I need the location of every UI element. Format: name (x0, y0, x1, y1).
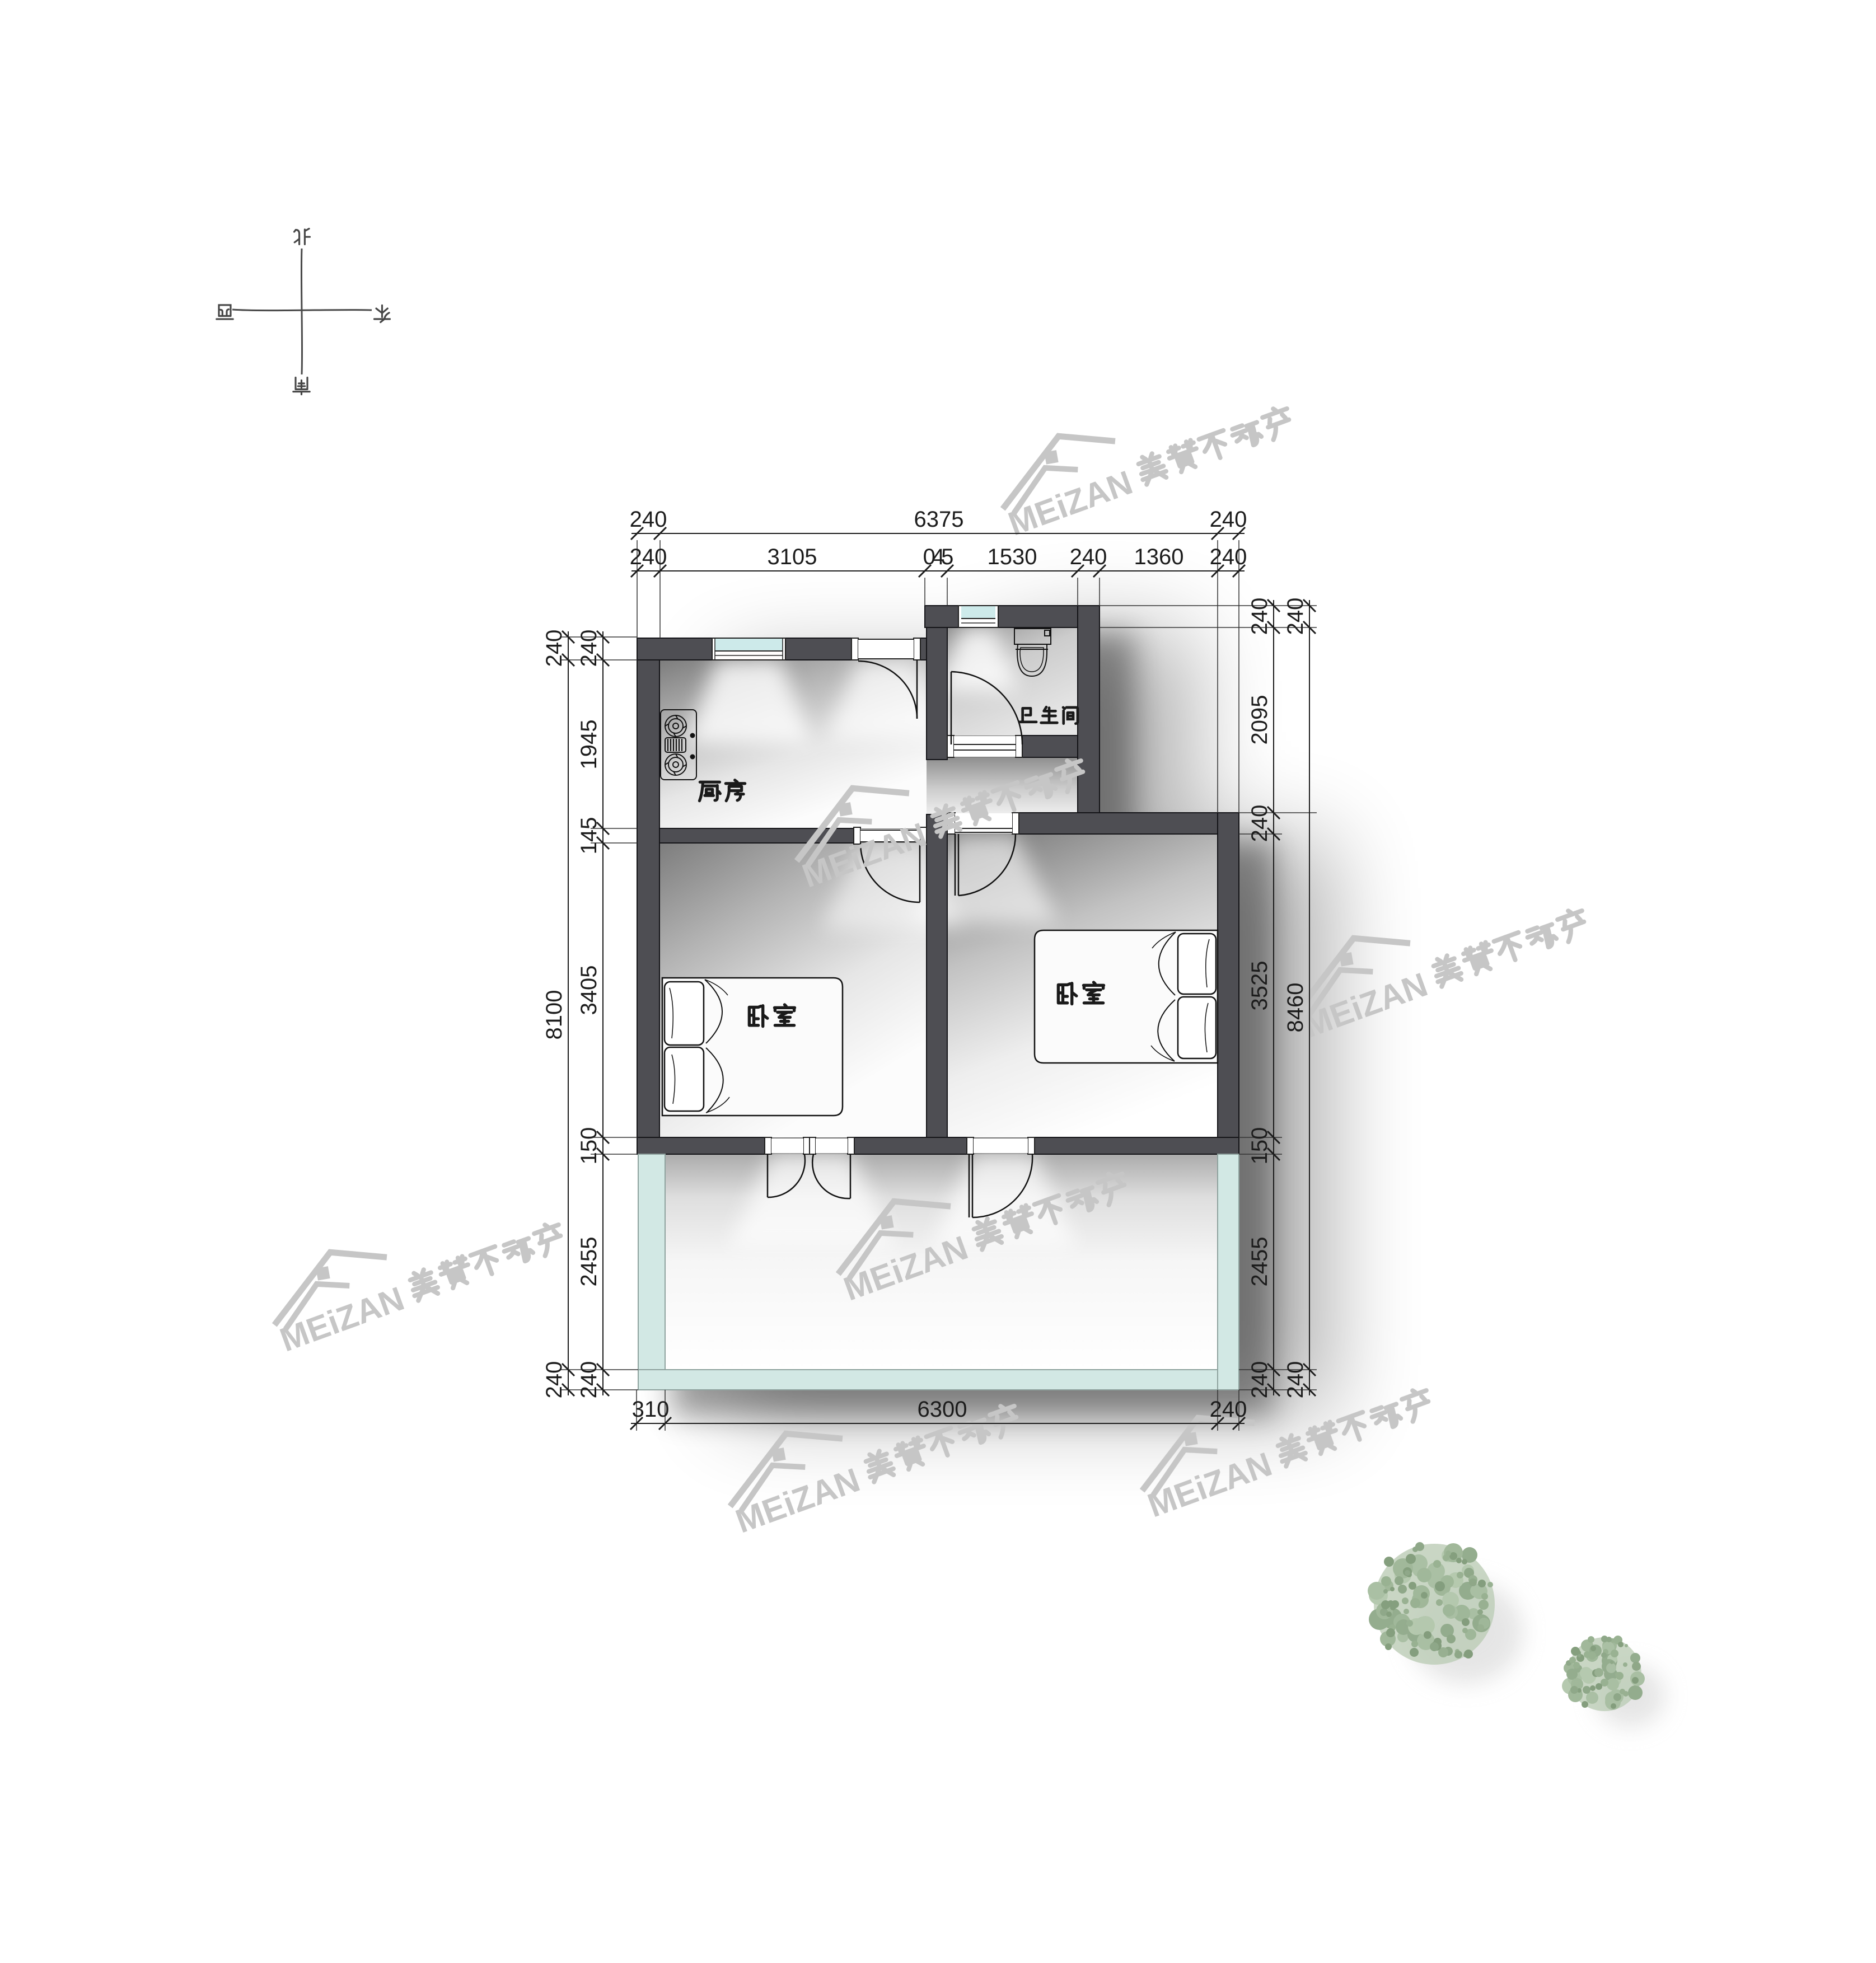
svg-text:145: 145 (577, 817, 601, 855)
svg-text:8460: 8460 (1283, 983, 1308, 1033)
svg-text:1530: 1530 (988, 545, 1037, 569)
svg-text:240: 240 (1283, 1361, 1308, 1399)
svg-text:2095: 2095 (1247, 695, 1272, 745)
svg-text:240: 240 (542, 1361, 567, 1399)
svg-text:310: 310 (632, 1397, 670, 1422)
svg-text:3405: 3405 (577, 966, 601, 1015)
svg-text:8100: 8100 (542, 990, 567, 1040)
svg-text:1945: 1945 (577, 720, 601, 770)
svg-text:1360: 1360 (1134, 545, 1184, 569)
svg-text:240: 240 (1210, 1397, 1247, 1422)
svg-text:045: 045 (923, 545, 953, 569)
svg-text:3525: 3525 (1247, 961, 1272, 1011)
svg-text:240: 240 (1247, 1361, 1272, 1399)
svg-text:240: 240 (577, 630, 601, 667)
svg-text:240: 240 (1247, 805, 1272, 842)
svg-text:240: 240 (630, 545, 667, 569)
svg-text:240: 240 (542, 630, 567, 667)
svg-text:240: 240 (630, 507, 667, 532)
svg-text:240: 240 (1210, 545, 1247, 569)
svg-text:6300: 6300 (918, 1397, 967, 1422)
svg-text:2455: 2455 (577, 1237, 601, 1287)
svg-text:150: 150 (577, 1127, 601, 1165)
svg-text:6375: 6375 (914, 507, 964, 532)
svg-text:240: 240 (1283, 598, 1308, 635)
svg-text:240: 240 (1247, 598, 1272, 635)
svg-text:240: 240 (1210, 507, 1247, 532)
svg-text:3105: 3105 (768, 545, 817, 569)
svg-text:2455: 2455 (1247, 1237, 1272, 1287)
svg-text:240: 240 (1070, 545, 1107, 569)
svg-text:240: 240 (577, 1361, 601, 1399)
svg-text:150: 150 (1247, 1127, 1272, 1165)
